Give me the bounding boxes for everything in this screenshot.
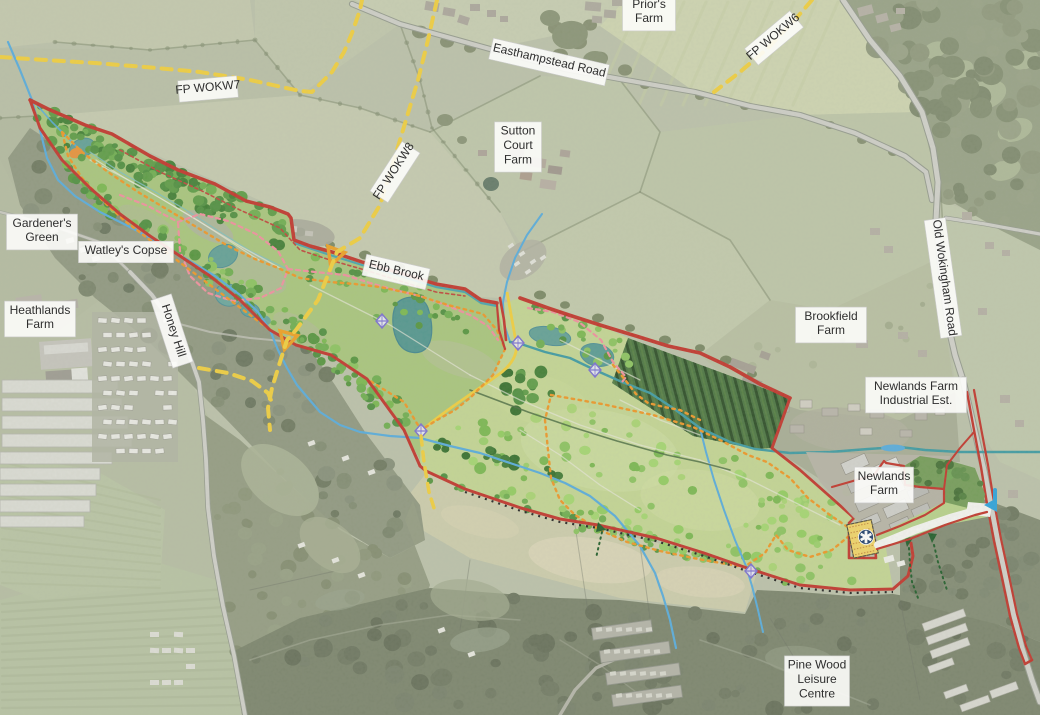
svg-text:Leisure: Leisure <box>797 672 837 686</box>
svg-text:Farm: Farm <box>504 152 532 166</box>
svg-text:Brookfield: Brookfield <box>804 309 857 323</box>
svg-text:Prior's: Prior's <box>632 0 666 11</box>
svg-text:Heathlands: Heathlands <box>10 303 71 317</box>
svg-text:Newlands: Newlands <box>858 469 911 483</box>
svg-text:Sutton: Sutton <box>501 124 536 138</box>
svg-text:Gardener's: Gardener's <box>13 216 72 230</box>
svg-text:Pine Wood: Pine Wood <box>788 658 846 672</box>
svg-text:Farm: Farm <box>817 323 845 337</box>
svg-text:Court: Court <box>503 138 533 152</box>
svg-text:Centre: Centre <box>799 686 835 700</box>
svg-text:Industrial Est.: Industrial Est. <box>880 393 953 407</box>
svg-text:Watley's Copse: Watley's Copse <box>85 243 168 257</box>
svg-text:Green: Green <box>25 230 58 244</box>
svg-text:Newlands Farm: Newlands Farm <box>874 379 958 393</box>
svg-text:Farm: Farm <box>870 483 898 497</box>
svg-text:Farm: Farm <box>635 11 663 25</box>
svg-text:Farm: Farm <box>26 317 54 331</box>
